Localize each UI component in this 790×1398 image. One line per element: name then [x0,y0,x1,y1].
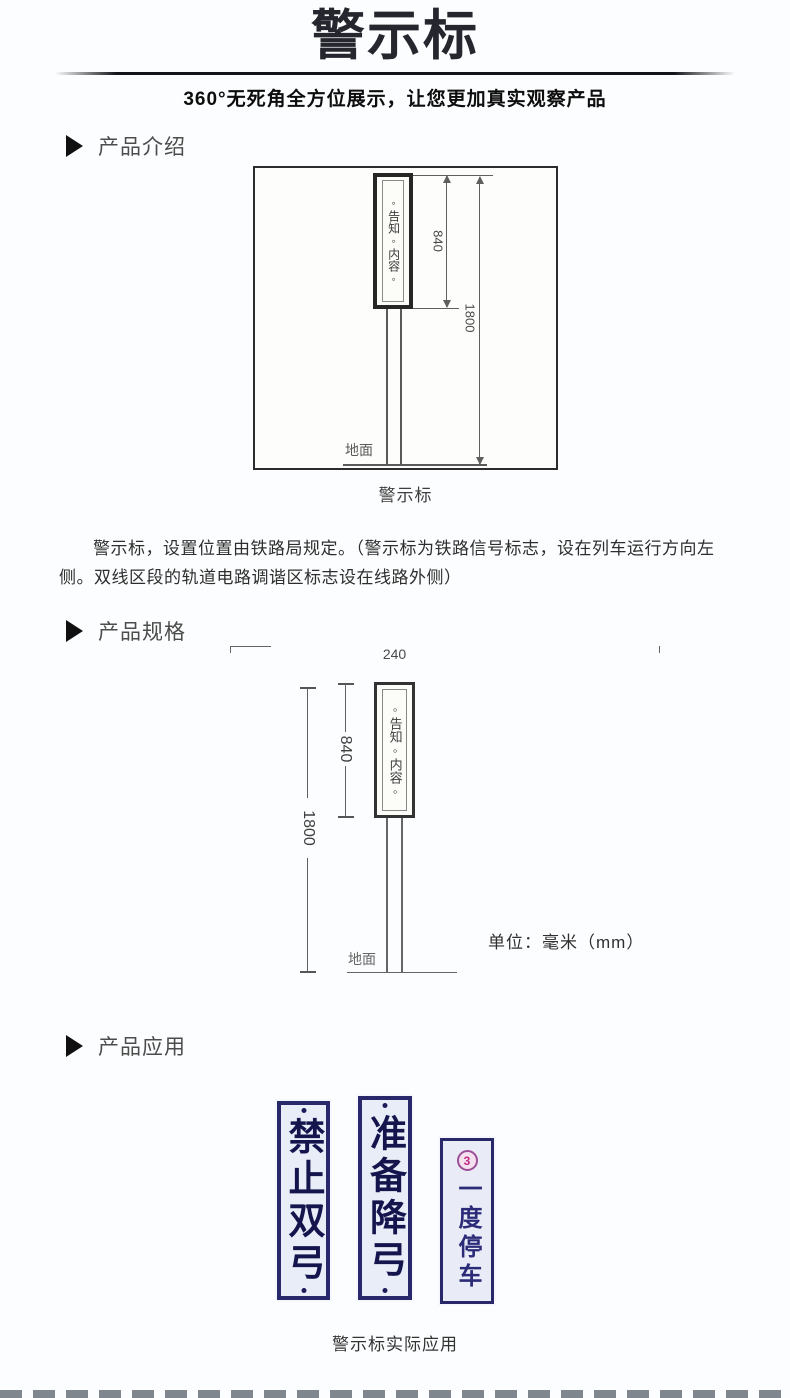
application-sign-photo: 3 一度停车 [440,1138,494,1304]
drawing-sign-plate: ◦告知◦内容◦ [373,173,413,309]
drawing-dimension-line-840 [446,176,447,307]
circled-number-badge: 3 [457,1150,478,1171]
drawing-dimension-line-240 [230,646,271,647]
drawing-ground-line [343,464,487,466]
section-header-apply: 产品应用 [66,1031,186,1061]
sign-photo-text: 禁止双弓 [285,1117,322,1285]
drawing-dimension-cap [300,971,316,973]
drawing-dimension-value-840: 840 [431,228,446,254]
application-sign-photo: 禁止双弓 [277,1101,330,1300]
triangle-bullet-icon [66,1035,83,1057]
triangle-bullet-icon [66,135,83,157]
drawing-ground-label: 地面 [345,440,373,460]
unit-note: 单位：毫米（mm） [488,928,644,953]
intro-paragraph: 警示标，设置位置由铁路局规定。（警示标为铁路信号标志，设在列车运行方向左侧。双线… [59,534,723,592]
drawing-sign-text: ◦告知◦内容◦ [386,196,399,286]
drawing-ground-label: 地面 [348,949,376,969]
section-label: 产品规格 [98,616,186,646]
drawing-sign-text: ◦告知◦内容◦ [387,702,401,799]
drawing-dimension-line-840 [345,684,346,732]
mounting-hole-dot [301,1288,306,1293]
drawing-dimension-value-240: 240 [374,646,415,662]
drawing-dimension-line-1800 [479,177,480,464]
intro-technical-drawing: ◦告知◦内容◦ 地面 840 1800 [253,166,558,470]
mounting-hole-dot [301,1108,306,1113]
page-subtitle: 360°无死角全方位展示，让您更加真实观察产品 [0,84,790,111]
drawing-dimension-value-1800: 1800 [463,302,478,335]
drawing-extension-line [413,308,459,309]
product-detail-page: 警示标 360°无死角全方位展示，让您更加真实观察产品 产品介绍 ◦告知◦内容◦… [0,0,790,1398]
application-caption: 警示标实际应用 [0,1330,790,1355]
application-sign-photo: 准备降弓 [358,1096,412,1300]
section-header-spec: 产品规格 [66,616,186,646]
drawing-sign-panel: ◦告知◦内容◦ [382,180,404,302]
sign-photo-text: 一度停车 [455,1176,479,1292]
drawing-dimension-line-1800 [307,858,308,972]
drawing-sign-panel: ◦告知◦内容◦ [382,689,407,811]
drawing-sign-plate: ◦告知◦内容◦ [374,682,415,818]
drawing-sign-post [386,818,403,973]
bottom-dashed-strip [0,1390,790,1398]
drawing-dimension-line-840 [345,766,346,817]
sign-photo-text: 准备降弓 [367,1114,404,1282]
section-label: 产品应用 [98,1031,186,1061]
drawing-dimension-cap [338,816,354,818]
spec-technical-drawing: 240 ◦告知◦内容◦ 地面 840 1800 单位：毫米（mm） [230,646,660,991]
mounting-hole-dot [383,1288,388,1293]
section-label: 产品介绍 [98,131,186,161]
triangle-bullet-icon [66,620,83,642]
drawing-dimension-cap [338,683,354,685]
drawing-dimension-value-1800: 1800 [299,808,317,848]
title-divider-line [55,72,735,75]
page-title: 警示标 [0,4,790,68]
drawing-sign-post [386,309,402,465]
drawing-dimension-value-840: 840 [336,734,354,765]
mounting-hole-dot [383,1103,388,1108]
intro-drawing-caption: 警示标 [253,481,558,506]
drawing-dimension-cap [300,687,316,689]
drawing-ground-line [347,972,457,973]
section-header-intro: 产品介绍 [66,131,186,161]
drawing-dimension-line-1800 [307,688,308,798]
